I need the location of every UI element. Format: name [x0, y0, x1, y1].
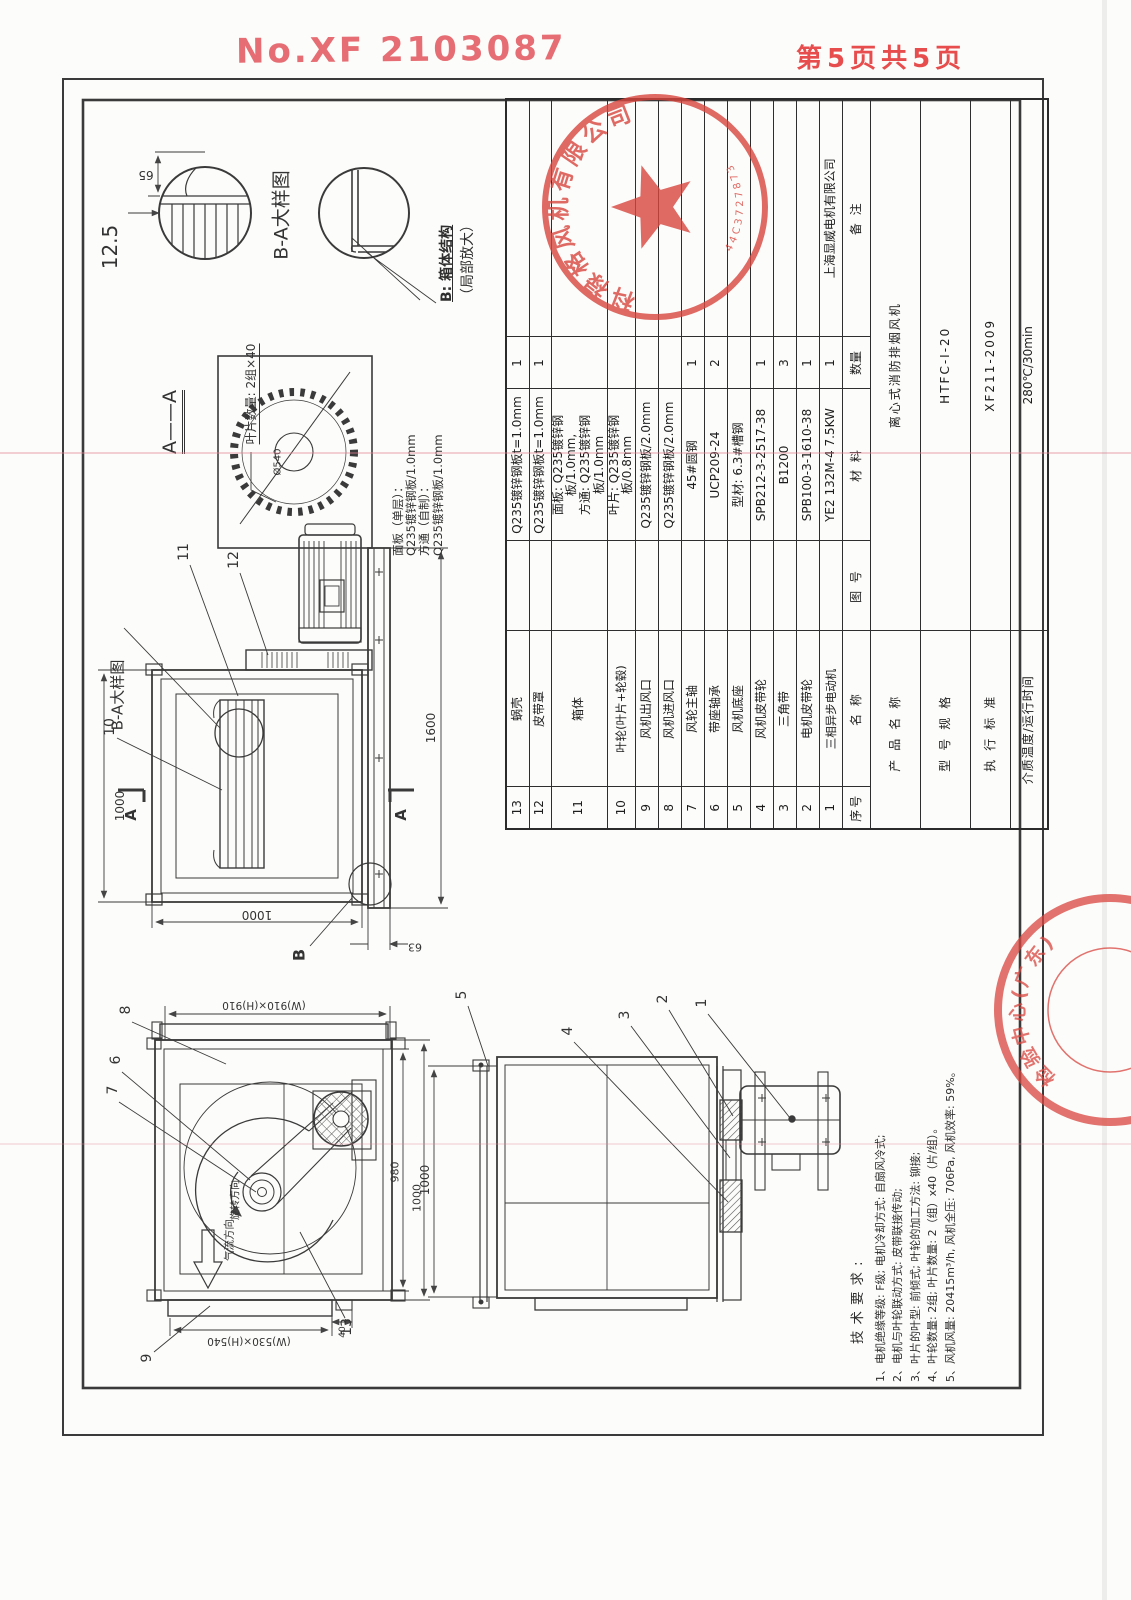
callout-13: 13: [339, 1318, 355, 1336]
tech-note-line: 1、电机绝缘等级: F级; 电机冷却方式: 自扇风冷式;: [872, 980, 890, 1382]
scan-artifact-line: [0, 1143, 1131, 1145]
scanned-drawing-page: 65 12.5 B-A大样图 A——A 叶片数量: 2组×40 Ø540 10 …: [0, 0, 1131, 1600]
table-row: 1三相异步电动机YE2 132M-4 7.5KW1上海显威电机有限公司: [820, 99, 843, 829]
tech-note-line: 5、风机风量: 20415m³/h, 风机全压: 706Pa, 风机效率: 59…: [942, 980, 960, 1382]
tech-notes-title: 技术要求:: [848, 980, 870, 1344]
table-row: 13蜗壳Q235镀锌钢板t=1.0mm1: [506, 99, 529, 829]
rotation-direction-label: 旋转方向: [227, 1180, 242, 1220]
tech-note-line: 2、电机与叶轮联动方式: 皮带联接传动;: [889, 980, 907, 1382]
callout-7: 7: [105, 1086, 121, 1095]
bottom-side-view: [428, 1006, 840, 1310]
blade-count-note: 叶片数量: 2组×40: [242, 344, 260, 445]
callout-3: 3: [617, 1011, 633, 1020]
standard-row: 执行标准 XF211-2009: [971, 99, 1011, 829]
aa-section-title: A——A: [159, 390, 185, 454]
dim-980: 980: [389, 1162, 402, 1183]
company-seal-graphic: 科禄格风机有限公司 44C3727873: [537, 89, 773, 325]
callout-12: 12: [226, 551, 242, 569]
callout-9: 9: [139, 1354, 155, 1363]
inspection-seal: 检验中心(广东) 汕头: [990, 890, 1131, 1130]
b-structure-annotation: B: 箱体结构 （局部放大）: [437, 130, 493, 302]
scan-artifact-line: [0, 452, 1131, 454]
panel-material-annotation: 面板（单层）： Q235镀锌钢板/1.0mm 方通（自制）： Q235镀锌钢板/…: [392, 298, 442, 556]
callout-8: 8: [118, 1006, 134, 1015]
airflow-direction-label: 气流方向: [222, 1219, 237, 1261]
dim-63: 63: [408, 941, 422, 954]
dim-front-910: (W)910×(H)910: [222, 999, 306, 1011]
dim-side-bottom-1000: 1000: [242, 908, 273, 922]
document-number-stamp: No.XF 2103087: [236, 28, 567, 71]
front-view: [119, 1006, 430, 1352]
ba-leader-label: B-A大样图: [107, 660, 128, 731]
tech-note-line: 3、叶片的叶型: 前倾式; 叶轮的加工方法: 铆接;: [907, 980, 925, 1382]
b-structure-title: B: 箱体结构: [437, 130, 458, 302]
model-spec-row: 型号规格 HTFC-I-20: [921, 99, 971, 829]
side-view: [98, 524, 448, 950]
dim-front-530: (W)530×(H)540: [207, 1335, 291, 1347]
panel-note-line: 方通（自制）：: [418, 298, 431, 556]
detail-b-structure-view: [319, 168, 436, 303]
svg-text:44C3727873: 44C3727873: [723, 160, 746, 253]
callout-4: 4: [560, 1027, 576, 1036]
seal-star-icon: [611, 165, 691, 249]
table-header-row: 序号 名 称 图 号 材 料 数量 备 注: [843, 99, 871, 829]
seal-number: 44C3727873: [723, 160, 746, 253]
callout-6: 6: [108, 1056, 124, 1065]
dim-12-5: 12.5: [98, 225, 122, 270]
company-seal: 科禄格风机有限公司 44C3727873: [537, 89, 773, 325]
panel-note-line: Q235镀锌钢板/1.0mm: [432, 298, 445, 556]
page-number-stamp: 第5页共5页: [796, 38, 966, 75]
callout-11: 11: [176, 543, 192, 561]
section-mark-a-left: A: [122, 809, 140, 821]
callout-2: 2: [655, 995, 671, 1004]
table-row: 2电机皮带轮SPB100-3-1610-381: [797, 99, 820, 829]
tech-note-line: 4、叶轮数量: 2组; 叶片数量: 2（组）x40（片/组）。: [924, 980, 942, 1382]
section-mark-a-right: A: [392, 809, 410, 821]
inspection-seal-graphic: 检验中心(广东) 汕头: [990, 890, 1131, 1130]
technical-requirements: 技术要求: 1、电机绝缘等级: F级; 电机冷却方式: 自扇风冷式; 2、电机与…: [848, 980, 1010, 1382]
scan-edge-shadow: [1102, 0, 1107, 1600]
dim-side-1600: 1600: [424, 713, 438, 744]
callout-5: 5: [454, 991, 470, 1000]
dim-65: 65: [138, 168, 153, 182]
b-structure-subtitle: （局部放大）: [458, 130, 479, 302]
temperature-row: 介质温度/运行时间 280℃/30min: [1011, 99, 1048, 829]
product-name-row: 产品名称 离心式消防排烟风机: [871, 99, 921, 829]
callout-1: 1: [694, 999, 710, 1008]
table-row: 3三角带B12003: [774, 99, 797, 829]
ba-detail-title: B-A大样图: [267, 170, 294, 259]
dim-bottom-view-1000: 1000: [418, 1165, 432, 1196]
callout-b: B: [290, 949, 309, 961]
